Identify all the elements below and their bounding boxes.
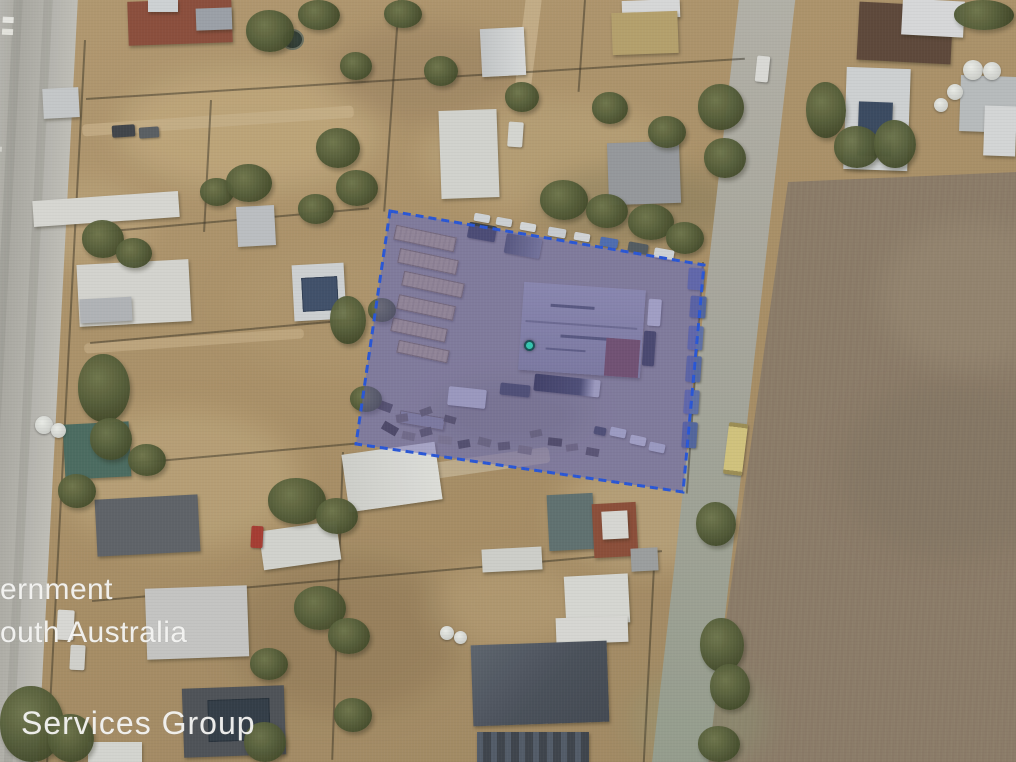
house-roof xyxy=(236,205,276,247)
tree xyxy=(250,648,288,680)
watermark-line-2: outh Australia xyxy=(0,616,187,650)
house-roof xyxy=(983,105,1016,156)
tree xyxy=(316,498,358,534)
house-roof xyxy=(607,141,681,205)
driveway-path xyxy=(429,447,550,480)
tree xyxy=(704,138,746,178)
tree xyxy=(340,52,372,80)
tree xyxy=(350,386,382,412)
tree xyxy=(78,354,130,422)
site-marker xyxy=(524,340,535,351)
vehicle xyxy=(642,331,656,367)
vehicle xyxy=(648,441,666,453)
tree xyxy=(592,92,628,124)
tree xyxy=(696,502,736,546)
vehicle xyxy=(687,267,704,290)
water-tank xyxy=(440,626,454,640)
tree xyxy=(336,170,378,206)
water-tank xyxy=(454,631,467,644)
vehicle xyxy=(683,390,700,415)
tree xyxy=(540,180,588,220)
road-marking xyxy=(2,29,13,36)
house-roof xyxy=(438,109,499,199)
vehicle xyxy=(687,326,704,351)
tree xyxy=(698,726,740,762)
tree xyxy=(334,698,372,732)
tree xyxy=(116,238,152,268)
roof-vent xyxy=(551,304,595,310)
water-tank xyxy=(963,60,983,80)
tree xyxy=(874,120,916,168)
vehicle xyxy=(573,232,590,243)
road-marking xyxy=(3,17,14,24)
tree xyxy=(710,664,750,710)
tree xyxy=(316,128,360,168)
vehicle xyxy=(653,247,674,260)
tree xyxy=(700,618,744,672)
roof-ridge xyxy=(525,320,637,330)
vehicle xyxy=(112,124,136,138)
water-tank xyxy=(51,423,66,438)
tree xyxy=(954,0,1014,30)
tree xyxy=(328,618,370,654)
tree xyxy=(246,10,294,52)
junk-debris xyxy=(401,431,415,442)
vehicle xyxy=(139,126,160,138)
vehicle xyxy=(250,526,263,549)
aerial-map: ernment outh Australia Services Group xyxy=(0,0,1016,762)
vehicle xyxy=(689,295,706,318)
tree xyxy=(330,296,366,344)
vehicle xyxy=(599,237,618,249)
junk-debris xyxy=(381,421,399,437)
house-roof xyxy=(88,742,142,762)
vehicle xyxy=(629,434,647,446)
tree xyxy=(384,0,422,28)
roof-red-section xyxy=(604,338,641,378)
road-marking xyxy=(0,146,2,152)
tree xyxy=(368,298,396,322)
house-roof xyxy=(471,641,610,727)
watermark-line-3: Services Group xyxy=(21,705,256,742)
vehicle xyxy=(504,233,543,259)
watermark-line-1: ernment xyxy=(0,573,113,607)
vehicle xyxy=(467,222,497,243)
tree xyxy=(226,164,272,202)
fence-line xyxy=(578,0,586,92)
vehicle xyxy=(547,227,566,239)
vehicle xyxy=(495,217,512,228)
house-roof xyxy=(630,547,658,571)
tree xyxy=(666,222,704,254)
house-roof xyxy=(547,493,596,551)
water-tank xyxy=(947,84,963,100)
junk-debris xyxy=(548,437,563,446)
house-roof xyxy=(148,0,178,12)
house-roof xyxy=(341,442,442,513)
vehicle xyxy=(593,426,606,436)
junk-debris xyxy=(585,447,599,457)
junk-debris xyxy=(498,441,511,450)
tree xyxy=(586,194,628,228)
tree xyxy=(648,116,686,148)
tree xyxy=(698,84,744,130)
junk-debris xyxy=(396,413,409,423)
vehicle xyxy=(447,386,487,409)
tree xyxy=(834,126,880,168)
junk-debris xyxy=(566,443,579,452)
vehicle xyxy=(473,213,490,224)
vehicle xyxy=(627,241,648,254)
roof-vent xyxy=(546,348,586,353)
vehicle xyxy=(519,222,536,233)
vehicle xyxy=(507,122,524,148)
vehicle xyxy=(755,55,771,82)
tree xyxy=(298,194,334,224)
junk-debris xyxy=(419,427,433,438)
tree xyxy=(58,474,96,508)
house-roof xyxy=(481,546,542,572)
house-roof xyxy=(95,494,201,556)
junk-debris xyxy=(438,435,453,445)
vehicle xyxy=(685,356,702,383)
tree xyxy=(806,82,846,138)
vehicle xyxy=(609,426,627,438)
house-roof xyxy=(601,510,628,539)
water-tank xyxy=(934,98,948,112)
tree xyxy=(90,418,132,460)
house-roof xyxy=(79,297,132,324)
tree xyxy=(505,82,539,112)
main-shed-building xyxy=(518,282,646,378)
tree xyxy=(298,0,340,30)
house-roof xyxy=(556,616,629,644)
tree xyxy=(128,444,166,476)
house-roof xyxy=(196,7,233,30)
vehicle xyxy=(647,299,662,327)
tree xyxy=(424,56,458,86)
water-tank xyxy=(983,62,1001,80)
vehicle xyxy=(681,422,698,449)
house-roof xyxy=(477,732,589,762)
house-roof xyxy=(480,27,526,77)
junk-debris xyxy=(457,439,470,449)
house-roof xyxy=(42,87,80,119)
house-roof xyxy=(611,11,678,55)
